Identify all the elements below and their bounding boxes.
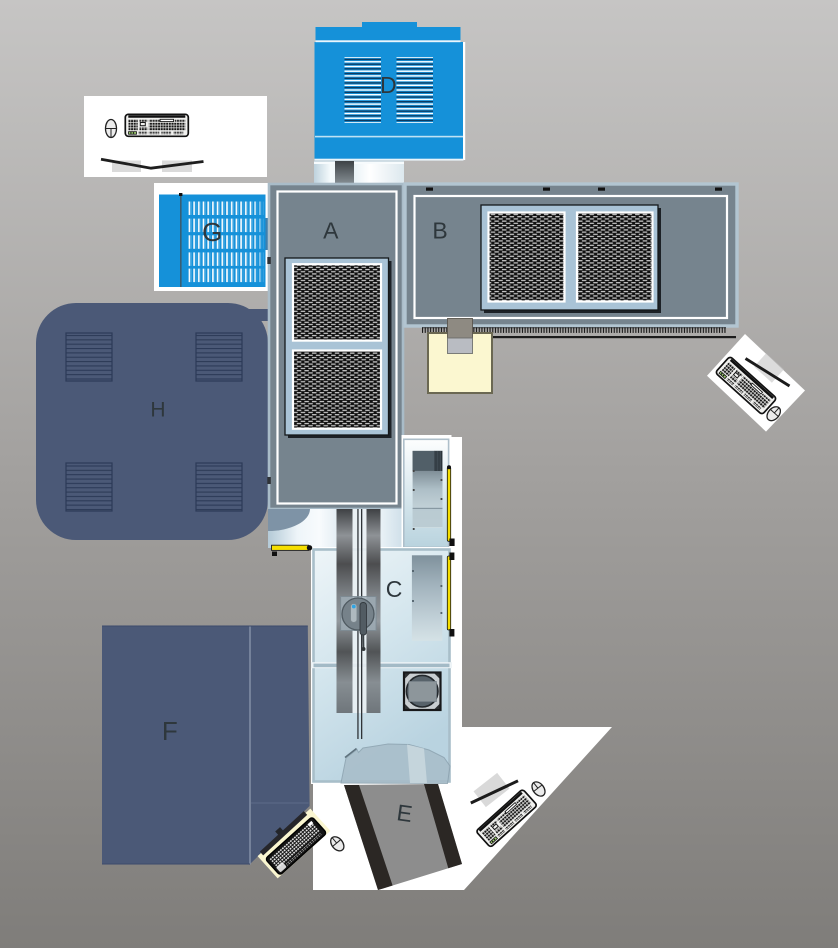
svg-text:G: G [202,217,222,247]
svg-text:H: H [150,398,165,421]
svg-text:D: D [380,72,397,98]
svg-text:B: B [432,217,447,243]
svg-text:F: F [162,716,178,746]
svg-text:C: C [386,576,403,602]
svg-text:A: A [323,218,339,244]
